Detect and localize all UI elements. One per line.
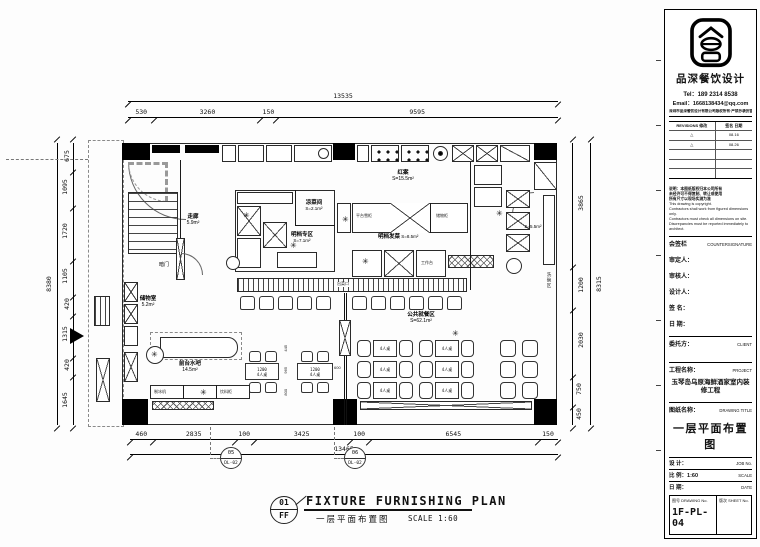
brand-logo <box>686 17 736 68</box>
chair <box>265 382 277 393</box>
revision-row-empty <box>669 169 752 178</box>
dining-table: 1200 4人桌 <box>245 363 279 380</box>
label-hidden-door: 暗门 <box>152 262 176 268</box>
shelf <box>124 282 138 302</box>
booth-seat <box>500 382 516 399</box>
room-label-cold-dish: 凉菜间 S=2.1m² <box>296 200 332 212</box>
countersign-row: 会签栏 COUNTERSIGNATURE <box>669 236 752 248</box>
project-row: 工程名称： PROJECT <box>669 362 752 374</box>
revision-header: REVISIONS 修改 签名 日期 <box>669 122 752 132</box>
staircase <box>128 192 178 254</box>
equipment-x <box>384 250 414 277</box>
stock-pot-center <box>438 151 443 156</box>
chair <box>409 296 424 310</box>
equipment <box>474 165 502 185</box>
room-label-pass: 明档发菜 S=8.5m² <box>378 234 418 240</box>
revision-row: △ 08.16 <box>669 131 752 141</box>
boundary-dashed <box>6 159 88 160</box>
chair <box>428 296 443 310</box>
chair <box>390 296 405 310</box>
caption-scale: SCALE 1:60 <box>408 514 458 523</box>
detail-bubble: 01 FF <box>270 496 298 524</box>
wall <box>470 162 471 290</box>
guard-rail-hatch <box>448 255 494 268</box>
counter-divider <box>430 203 431 233</box>
booth-seat <box>461 361 474 378</box>
worktop <box>500 145 530 162</box>
annex-grille <box>94 296 110 326</box>
counter <box>277 252 317 268</box>
chair <box>249 382 261 393</box>
room-label-dishwash-area: S=5.5m² <box>516 224 550 230</box>
entrance-arrow-icon <box>70 328 84 344</box>
equip-label: 工作台 <box>421 261 433 266</box>
equip-label: 制冰机 <box>154 390 166 395</box>
chair <box>301 382 313 393</box>
booth-seat <box>461 382 474 399</box>
chair <box>316 296 331 310</box>
dim-text: 600 <box>334 366 341 371</box>
booth-seat <box>522 382 538 399</box>
booth-seat <box>399 340 413 357</box>
booth-seat <box>419 361 433 378</box>
wall <box>295 225 335 226</box>
floor-drain-icon <box>452 330 459 338</box>
chair <box>317 382 329 393</box>
equip-label: 储物柜 <box>436 214 448 219</box>
job-row: 设 计： JOB No. <box>669 457 752 469</box>
brand-name: 品深餐饮设计 <box>669 71 752 86</box>
dim-left-total: 8380 <box>48 143 58 425</box>
column <box>534 143 557 160</box>
drawing-sheet: 13535 530 3260 150 9595 8380 675 1095 17… <box>0 0 760 547</box>
equipment <box>238 145 264 162</box>
sink <box>506 234 530 252</box>
field-signature: 签 名： <box>669 303 752 312</box>
room-label-corridor: 走廊 5.9m² <box>176 214 210 226</box>
booth-seat <box>522 340 538 357</box>
equip-label: 平台雪柜 <box>356 214 372 219</box>
room-label-hot-kitchen: 红案 S=15.5m² <box>388 170 418 182</box>
chair <box>259 296 274 310</box>
section-marker: 05 DL-02 <box>220 447 242 469</box>
floor-drain-icon <box>290 242 297 250</box>
brand-email: Email：1668138434@qq.com <box>669 99 752 107</box>
revision-row: △ 08.26 <box>669 141 752 151</box>
wall-counter <box>543 195 555 265</box>
drawing-title: 一层平面布置图 <box>669 420 752 452</box>
drawing-number: 1F-PL-04 <box>672 504 714 532</box>
chair <box>301 351 313 362</box>
shelf <box>124 304 138 324</box>
drawing-number-box: 图号 DRAWING No. 1F-PL-04 版次 SHEET No. <box>669 495 752 535</box>
revision-table: REVISIONS 修改 签名 日期 △ 08.16 △ 08.26 <box>669 121 752 179</box>
ruler-tick <box>656 255 661 256</box>
booth-seat <box>399 361 413 378</box>
dim-text: 800 <box>284 389 289 396</box>
ruler-tick <box>656 125 661 126</box>
booth-table: 4人桌 <box>435 340 459 357</box>
chair <box>297 296 312 310</box>
booth-seat <box>357 382 371 399</box>
notes-block: 说明：本图纸版权归本公司所有 未经许可不得复制、转让或使用 所有尺寸以现场实测为… <box>669 187 752 232</box>
drawing-number-cell: 图号 DRAWING No. 1F-PL-04 <box>670 496 717 534</box>
revision-row-empty <box>669 160 752 170</box>
fridge-black <box>185 145 219 153</box>
booth-table: 4人桌 <box>373 361 397 378</box>
partition-cabinet <box>339 320 351 356</box>
floor-drain-icon <box>243 212 250 220</box>
field-designer: 设计人： <box>669 287 752 296</box>
booth-seat <box>522 361 538 378</box>
copyright-line: 深圳市品深餐饮设计有限公司版权所有·严禁抄袭仿冒违者必究 <box>669 109 752 117</box>
field-date: 日 期： <box>669 319 752 328</box>
equipment <box>266 145 292 162</box>
drawing-caption: 01 FF FIXTURE FURNISHING PLAN 一层平面布置图 SC… <box>258 492 598 532</box>
field-checker: 审核人： <box>669 271 752 280</box>
annex-cabinet <box>96 358 110 402</box>
counter-divider <box>216 385 217 399</box>
equipment <box>474 187 502 207</box>
chair <box>447 296 462 310</box>
dining-table: 1200 4人桌 <box>297 363 333 380</box>
counter-x <box>390 203 430 233</box>
counter-divider <box>183 385 184 399</box>
floor-drain-icon <box>362 258 369 266</box>
round-sink <box>506 258 522 274</box>
revision-row-empty <box>669 150 752 160</box>
floor-drain-icon <box>496 210 503 218</box>
equipment <box>222 145 236 162</box>
dim-bottom-segments: 460 2835 100 3425 100 6545 150 <box>130 430 558 440</box>
drawing-title-row: 图纸名称： DRAWING TITLE <box>669 402 752 414</box>
tall-cabinet <box>237 238 261 268</box>
ruler-tick <box>656 320 661 321</box>
ruler-tick <box>656 190 661 191</box>
floor-drain-icon <box>200 389 207 397</box>
ruler-tick <box>656 450 661 451</box>
floor-drain-icon <box>342 216 349 224</box>
chair <box>352 296 367 310</box>
field-approver: 审定人： <box>669 255 752 264</box>
equipment <box>357 145 369 162</box>
dim-left-segments: 675 1095 1720 1105 420 1315 420 1645 <box>64 143 74 425</box>
sheet-number-cell: 版次 SHEET No. <box>717 496 751 534</box>
date-row: 日 期： DATE <box>669 481 752 493</box>
booth-seat <box>419 382 433 399</box>
booth-seat <box>500 361 516 378</box>
chair <box>317 351 329 362</box>
counter <box>237 192 293 204</box>
column <box>333 143 355 160</box>
client-row: 委托方： CLIENT <box>669 336 752 348</box>
room-label-bar: 前台水吧 14.5m² <box>168 361 212 373</box>
column <box>534 399 557 425</box>
tall-cabinet <box>124 352 138 382</box>
sink <box>452 145 474 162</box>
dim-text: 13535 <box>333 93 353 100</box>
brand-tel: Tel：189 2314 8538 <box>669 89 752 98</box>
plant-icon <box>151 351 158 359</box>
sink <box>506 190 530 208</box>
caption-title-en: FIXTURE FURNISHING PLAN <box>306 494 507 508</box>
booth-seat <box>399 382 413 399</box>
column <box>122 399 148 425</box>
chair <box>240 296 255 310</box>
dim-right-segments: 3865 1200 2030 750 450 <box>572 143 582 425</box>
chair <box>265 351 277 362</box>
room-label-dishwash: 洗碗区 <box>546 272 552 289</box>
equip-label: 饮料柜 <box>220 390 232 395</box>
stove-burners <box>401 145 429 162</box>
sink-round <box>318 148 329 159</box>
chair <box>371 296 386 310</box>
room-label-dining: 公共就餐区 S=62.1m² <box>398 312 444 324</box>
booth-table: 4人桌 <box>435 361 459 378</box>
room-label-open-counter: 明档专区 S=7.1m² <box>282 232 322 244</box>
bar-counter <box>160 337 238 358</box>
bench-backrest <box>360 401 532 410</box>
title-block: 品深餐饮设计 Tel：189 2314 8538 Email：166813843… <box>664 9 757 539</box>
booth-seat <box>357 340 371 357</box>
marker-leader <box>334 458 344 459</box>
bubble-tail <box>295 496 306 506</box>
dim-top-total: 13535 <box>128 92 558 102</box>
serving-counter <box>237 278 467 292</box>
ruler-tick <box>656 385 661 386</box>
dim-top-segments: 530 3260 150 9595 <box>128 108 558 118</box>
marker-leader <box>210 427 211 455</box>
shelf <box>124 326 138 346</box>
caption-rule <box>304 509 472 511</box>
ruler-tick <box>656 60 661 61</box>
booth-seat <box>500 340 516 357</box>
booth-table: 4人桌 <box>373 340 397 357</box>
booth-seat <box>357 361 371 378</box>
partition-wall <box>344 293 347 425</box>
dim-text: 965 <box>284 367 289 374</box>
equip-label: 出菜口 <box>336 282 350 287</box>
caption-title-cn: 一层平面布置图 <box>316 513 390 525</box>
dim-text: 445 <box>284 345 289 352</box>
scale-row: 比 例：1:60 SCALE <box>669 469 752 481</box>
booth-table: 4人桌 <box>373 382 397 399</box>
chair <box>278 296 293 310</box>
column <box>122 143 150 160</box>
project-name: 玉琴岛乌原海鲜酒家室内装修工程 <box>669 379 752 395</box>
chair <box>249 351 261 362</box>
bar-brick-hatch <box>152 401 214 410</box>
booth-seat <box>461 340 474 357</box>
dim-right-total: 8315 <box>590 143 600 425</box>
corner-platform <box>534 162 557 190</box>
round-sink <box>226 256 240 270</box>
marker-leader <box>210 458 220 459</box>
stove-burners <box>371 145 399 162</box>
section-marker: 06 DL-02 <box>344 447 366 469</box>
sink <box>476 145 498 162</box>
fridge-black <box>152 145 180 153</box>
booth-table: 4人桌 <box>435 382 459 399</box>
marker-leader <box>334 427 335 455</box>
booth-seat <box>419 340 433 357</box>
